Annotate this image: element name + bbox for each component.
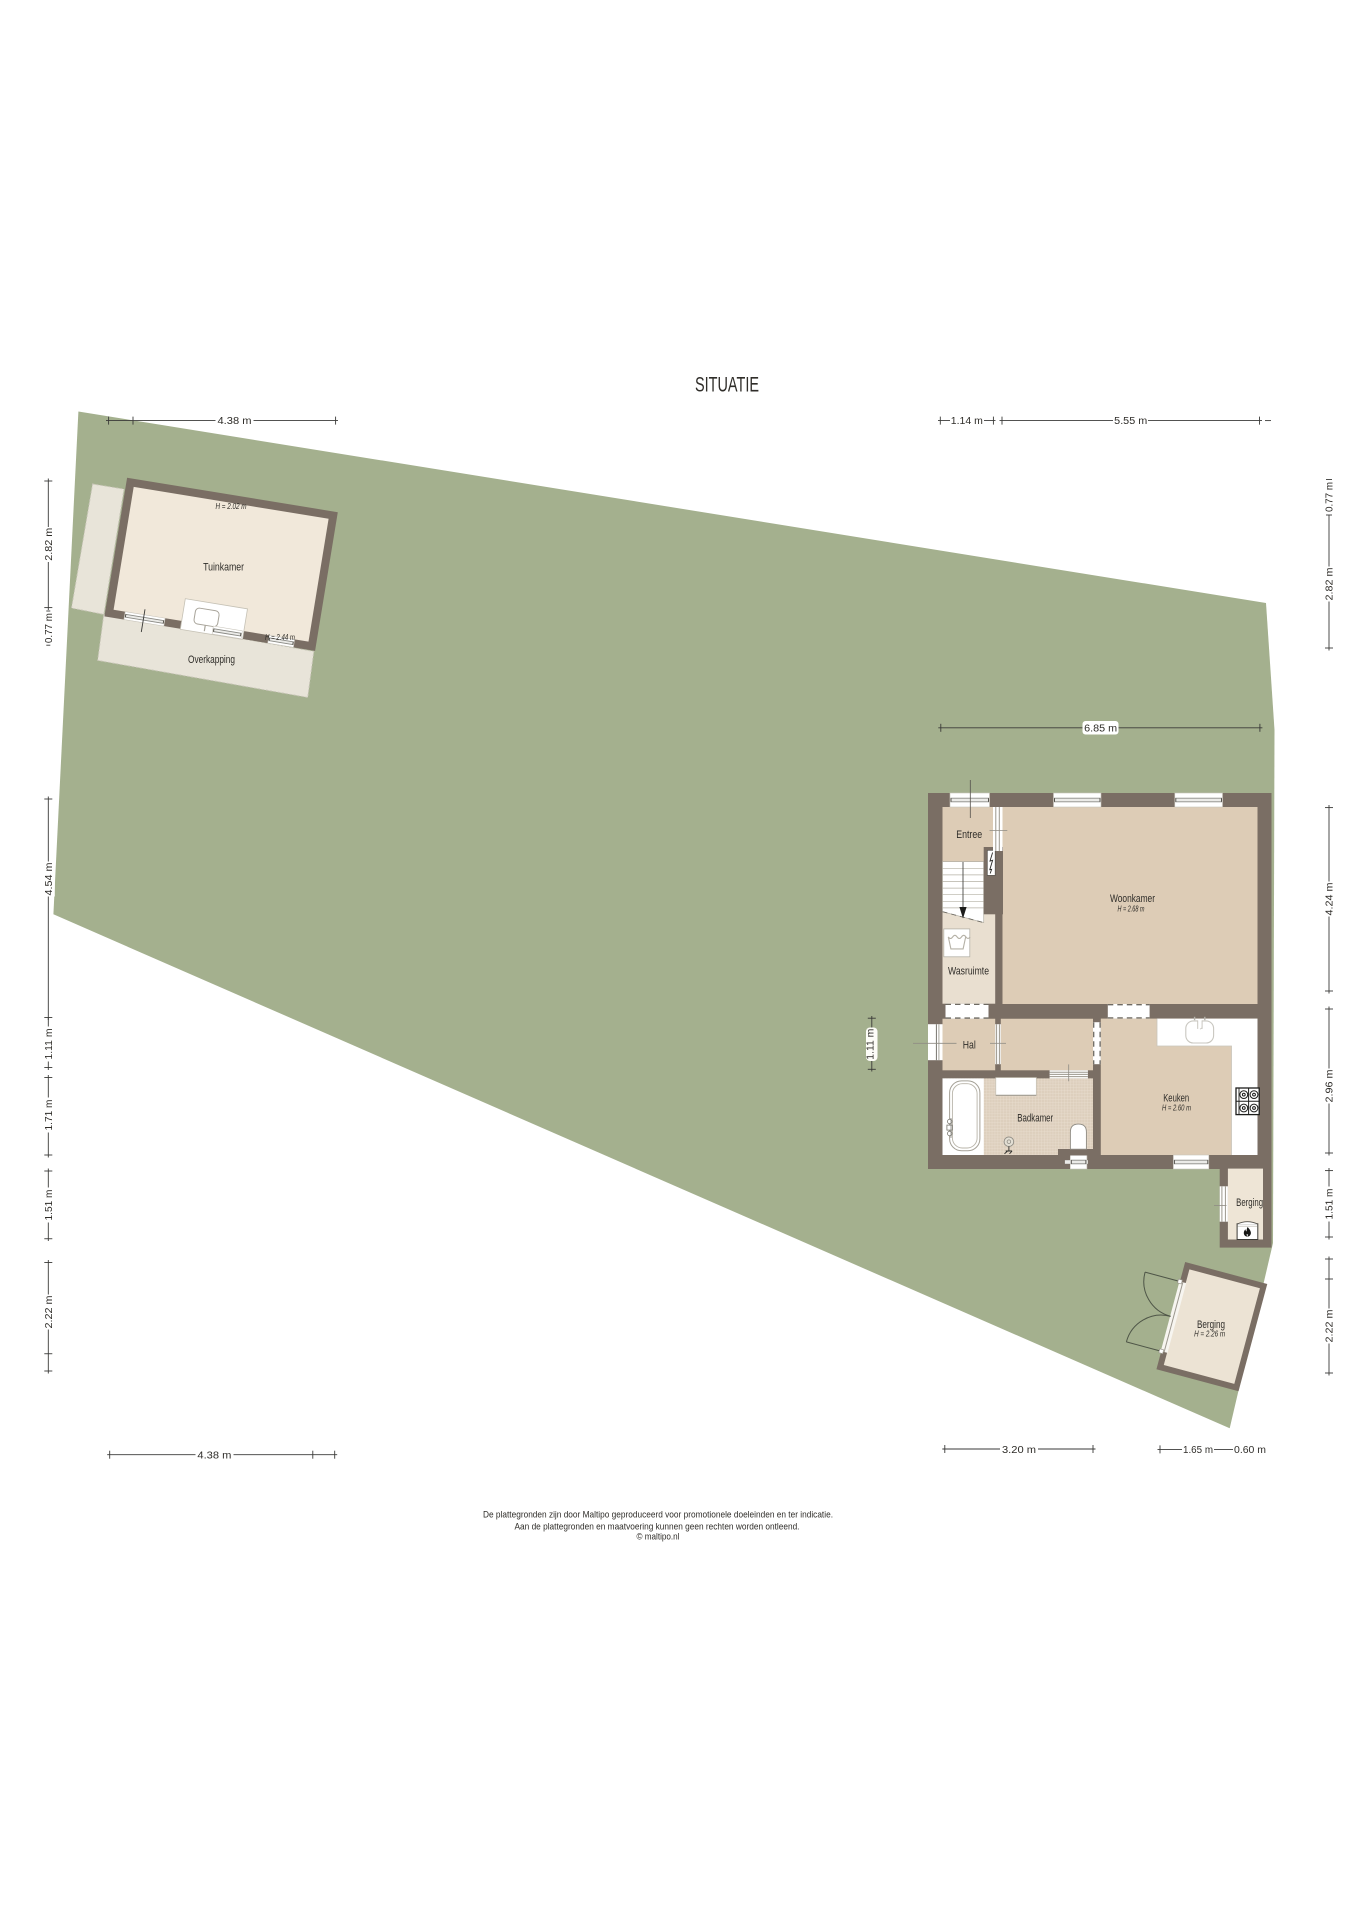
svg-text:5.55 m: 5.55 m	[1114, 416, 1147, 427]
svg-text:Berging: Berging	[1236, 1197, 1263, 1209]
svg-text:1.11 m: 1.11 m	[865, 1029, 876, 1060]
svg-text:2.22 m: 2.22 m	[44, 1296, 55, 1329]
svg-text:Hal: Hal	[963, 1040, 976, 1052]
svg-text:H = 2.26 m: H = 2.26 m	[1194, 1329, 1225, 1339]
svg-text:Overkapping: Overkapping	[188, 654, 235, 666]
svg-text:1.14 m: 1.14 m	[951, 416, 983, 427]
svg-text:0.77 m: 0.77 m	[44, 613, 55, 643]
svg-text:H = 2.02 m: H = 2.02 m	[216, 501, 247, 511]
svg-text:Wasruimte: Wasruimte	[948, 966, 989, 978]
svg-text:2.22 m: 2.22 m	[1325, 1310, 1336, 1343]
svg-text:4.54 m: 4.54 m	[44, 863, 55, 896]
svg-text:2.96 m: 2.96 m	[1325, 1070, 1336, 1103]
svg-text:De plattegronden zijn door Mal: De plattegronden zijn door Maltipo gepro…	[483, 1510, 833, 1521]
svg-text:H = 2.68 m: H = 2.68 m	[1118, 904, 1145, 914]
svg-text:6.85 m: 6.85 m	[1084, 724, 1117, 735]
svg-text:H = 2.44 m: H = 2.44 m	[265, 632, 295, 642]
svg-text:1.71 m: 1.71 m	[44, 1100, 55, 1131]
svg-text:1.11 m: 1.11 m	[44, 1029, 55, 1060]
svg-text:2.82 m: 2.82 m	[1325, 568, 1336, 601]
svg-text:1.51 m: 1.51 m	[1325, 1189, 1336, 1220]
svg-text:4.38 m: 4.38 m	[218, 416, 252, 427]
svg-text:4.24 m: 4.24 m	[1325, 883, 1336, 916]
svg-text:SITUATIE: SITUATIE	[695, 374, 759, 397]
svg-text:0.77 m: 0.77 m	[1325, 482, 1336, 512]
svg-text:Entree: Entree	[956, 829, 982, 841]
svg-text:Tuinkamer: Tuinkamer	[203, 561, 244, 573]
svg-text:1.51 m: 1.51 m	[44, 1190, 55, 1221]
svg-text:4.38 m: 4.38 m	[197, 1450, 231, 1461]
svg-text:© maltipo.nl: © maltipo.nl	[637, 1531, 680, 1542]
svg-text:H = 2.60 m: H = 2.60 m	[1162, 1102, 1191, 1112]
svg-text:3.20 m: 3.20 m	[1002, 1445, 1036, 1456]
svg-text:0.60 m: 0.60 m	[1234, 1445, 1266, 1456]
svg-text:1.65 m: 1.65 m	[1183, 1445, 1213, 1456]
svg-text:Badkamer: Badkamer	[1017, 1113, 1053, 1125]
svg-text:2.82 m: 2.82 m	[44, 528, 55, 561]
